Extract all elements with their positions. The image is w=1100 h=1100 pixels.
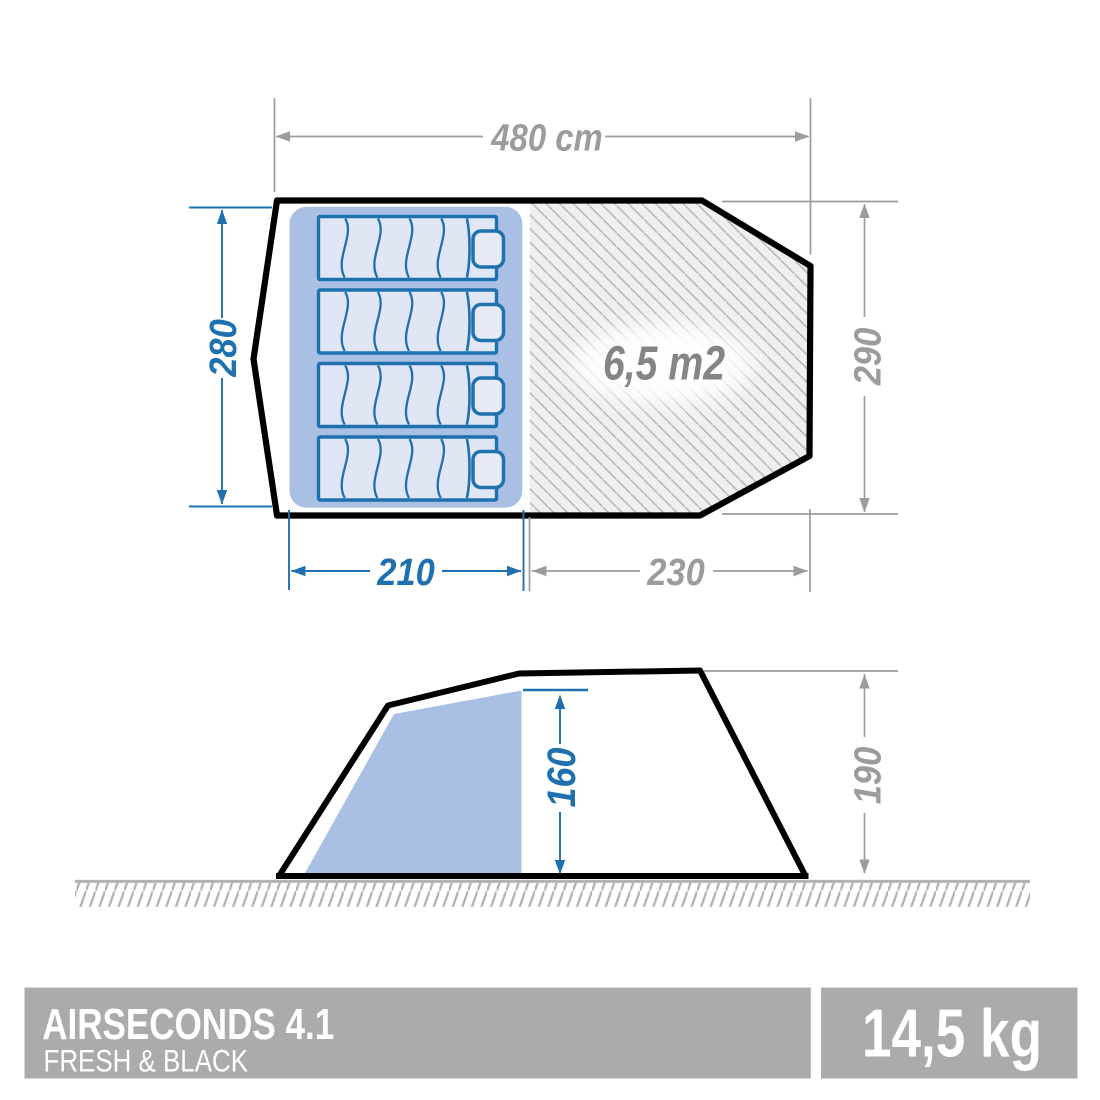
svg-text:14,5 kg: 14,5 kg (862, 996, 1042, 1071)
svg-text:6,5 m2: 6,5 m2 (603, 338, 725, 391)
svg-text:480 cm: 480 cm (490, 117, 602, 160)
svg-text:160: 160 (540, 748, 584, 808)
svg-text:280: 280 (202, 319, 245, 377)
svg-text:290: 290 (846, 328, 889, 386)
svg-text:210: 210 (376, 551, 434, 594)
svg-text:230: 230 (646, 551, 704, 594)
svg-text:FRESH & BLACK: FRESH & BLACK (44, 1042, 249, 1078)
svg-text:190: 190 (846, 747, 889, 805)
